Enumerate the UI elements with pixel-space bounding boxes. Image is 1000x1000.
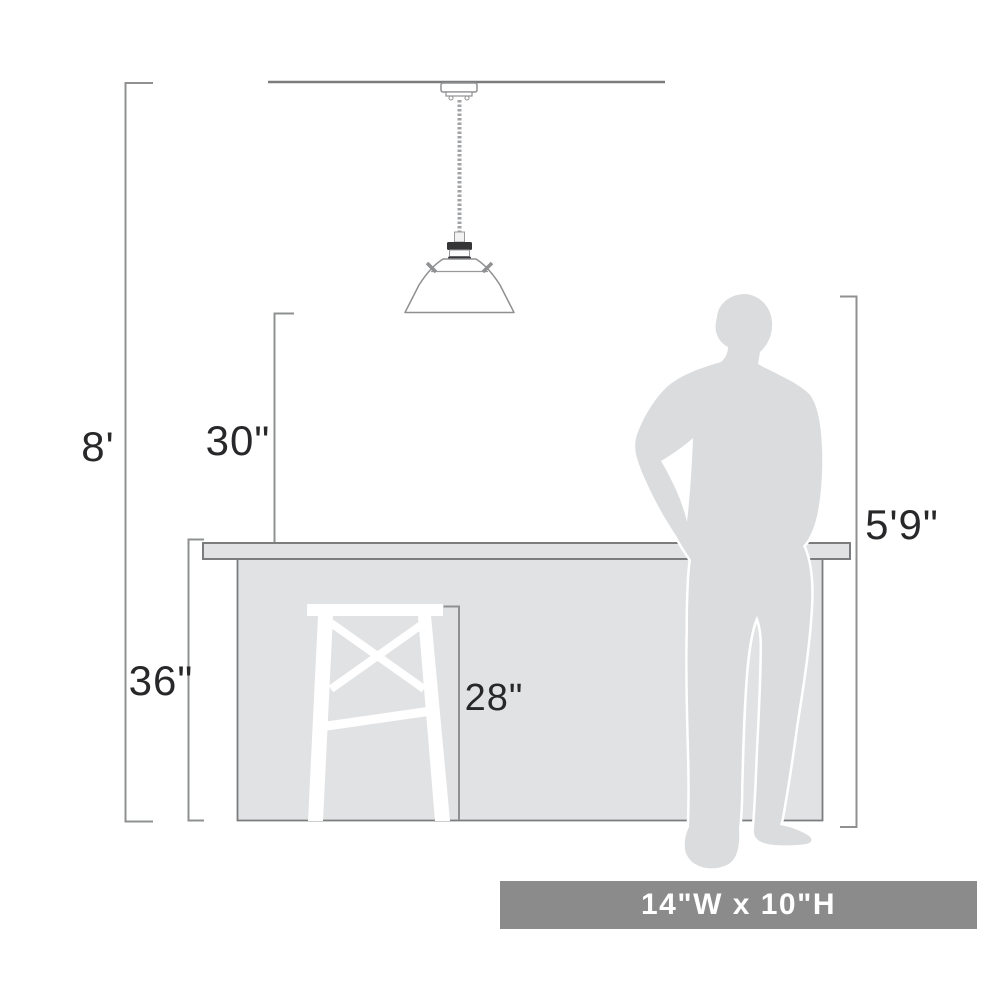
person-height-label: 5'9" <box>865 504 939 546</box>
stool-height-label: 28" <box>465 679 524 717</box>
canopy-screw <box>449 96 453 100</box>
canopy-screw <box>465 96 469 100</box>
fixture-clearance-label: 30" <box>206 420 271 462</box>
ceiling-height-label: 8' <box>81 426 114 468</box>
counter-height-label: 36" <box>129 660 194 702</box>
pendant-cone-shade <box>405 259 514 313</box>
dimension-bracket-fixture-clearance <box>275 314 295 544</box>
socket-neck <box>455 232 465 242</box>
product-size-banner: 14"W x 10"H <box>500 881 977 929</box>
stool-seat <box>307 604 443 616</box>
pendant-canopy <box>441 83 477 92</box>
pendant-canopy-base <box>446 92 472 96</box>
diagram-canvas <box>0 0 1000 1000</box>
socket-body <box>450 250 470 257</box>
scale-diagram: 8' 30" 36" 28" 5'9" 14"W x 10"H <box>0 0 1000 1000</box>
dimension-bracket-ceiling-height <box>126 83 154 822</box>
dimension-bracket-person-height <box>840 297 857 828</box>
pendant-light-icon <box>405 83 514 313</box>
product-size-label: 14"W x 10"H <box>641 888 836 922</box>
socket-band-top <box>447 242 472 250</box>
